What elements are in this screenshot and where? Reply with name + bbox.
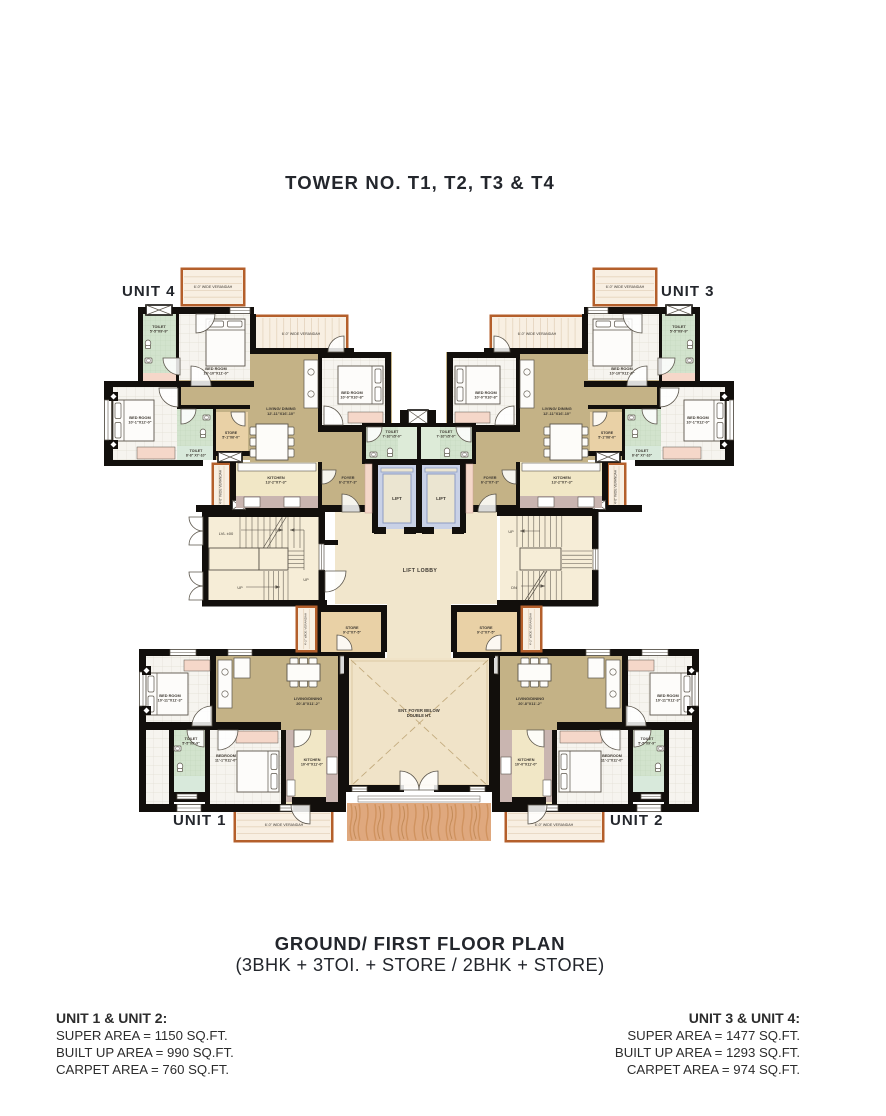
svg-text:12'-11"X16'-10": 12'-11"X16'-10"	[267, 411, 295, 416]
svg-text:BEDROOM: BEDROOM	[602, 754, 622, 758]
svg-text:TOILET: TOILET	[672, 325, 686, 329]
svg-text:UP: UP	[508, 530, 514, 534]
svg-text:KITCHEN: KITCHEN	[267, 475, 284, 480]
svg-text:BED ROOM: BED ROOM	[341, 390, 362, 395]
svg-text:6'-2"X7'-3": 6'-2"X7'-3"	[481, 481, 500, 485]
svg-text:10'-0"X11'-0": 10'-0"X11'-0"	[301, 763, 324, 767]
svg-text:4'-2" WIDE VERANDAH: 4'-2" WIDE VERANDAH	[529, 613, 533, 645]
svg-text:LVL ±00: LVL ±00	[219, 531, 234, 536]
svg-text:UP: UP	[237, 586, 243, 590]
svg-text:BED ROOM: BED ROOM	[205, 366, 226, 371]
svg-text:11'-1"X11'-0": 11'-1"X11'-0"	[215, 759, 237, 763]
svg-text:BEDROOM: BEDROOM	[216, 754, 236, 758]
svg-text:4'-0" WIDE VERANDAH: 4'-0" WIDE VERANDAH	[219, 469, 223, 504]
svg-text:GROUND/ FIRST FLOOR PLAN: GROUND/ FIRST FLOOR PLAN	[275, 933, 566, 954]
svg-text:SUPER AREA = 1477 SQ.FT.: SUPER AREA = 1477 SQ.FT.	[627, 1028, 800, 1043]
svg-text:BED ROOM: BED ROOM	[687, 415, 708, 420]
svg-text:6'-0" WIDE VERANDAH: 6'-0" WIDE VERANDAH	[282, 332, 321, 336]
svg-text:UNIT 1: UNIT 1	[173, 812, 227, 829]
svg-text:KITCHEN: KITCHEN	[553, 475, 570, 480]
svg-text:UNIT 2: UNIT 2	[610, 812, 664, 829]
svg-text:FOYER: FOYER	[341, 476, 354, 480]
svg-text:DN: DN	[511, 586, 517, 590]
svg-text:CARPET AREA = 974 SQ.FT.: CARPET AREA = 974 SQ.FT.	[627, 1062, 800, 1077]
svg-text:UP: UP	[303, 578, 309, 582]
svg-text:10'-10"X11'-0": 10'-10"X11'-0"	[203, 372, 228, 376]
svg-text:5'-5"X9'-9": 5'-5"X9'-9"	[182, 741, 200, 745]
svg-text:10'-0"X11'-0": 10'-0"X11'-0"	[515, 763, 538, 767]
svg-text:10'-10"X11'-0": 10'-10"X11'-0"	[609, 372, 634, 376]
svg-text:BED ROOM: BED ROOM	[159, 693, 180, 698]
svg-text:4'-2" WIDE VERANDAH: 4'-2" WIDE VERANDAH	[304, 613, 308, 645]
svg-text:5'-5"X9'-9": 5'-5"X9'-9"	[670, 330, 689, 334]
svg-text:5'-1"X6'-0": 5'-1"X6'-0"	[222, 435, 240, 439]
svg-text:BED ROOM: BED ROOM	[129, 415, 150, 420]
svg-text:5'-5"X9'-9": 5'-5"X9'-9"	[638, 741, 656, 745]
svg-text:STORE: STORE	[479, 626, 492, 630]
svg-text:11'-1"X11'-0": 11'-1"X11'-0"	[601, 759, 623, 763]
svg-text:KITCHEN: KITCHEN	[518, 758, 535, 762]
svg-text:8'-8" X7'-10": 8'-8" X7'-10"	[632, 453, 653, 457]
svg-text:13'-2"X7'-3": 13'-2"X7'-3"	[265, 481, 286, 485]
svg-text:20'-8"X11'-2": 20'-8"X11'-2"	[518, 701, 542, 706]
svg-text:LIFT: LIFT	[392, 496, 402, 501]
svg-text:TOILET: TOILET	[152, 325, 166, 329]
svg-text:LIFT LOBBY: LIFT LOBBY	[403, 568, 438, 574]
svg-text:6'-2"X7'-3": 6'-2"X7'-3"	[339, 481, 358, 485]
svg-text:UNIT 3: UNIT 3	[661, 283, 715, 300]
svg-text:8'-8" X7'-10": 8'-8" X7'-10"	[186, 453, 207, 457]
svg-text:10'-0"X10'-8": 10'-0"X10'-8"	[474, 396, 497, 400]
svg-text:BUILT UP AREA = 1293 SQ.FT.: BUILT UP AREA = 1293 SQ.FT.	[615, 1045, 800, 1060]
svg-text:UNIT 4: UNIT 4	[122, 283, 176, 300]
svg-text:5'-1"X6'-0": 5'-1"X6'-0"	[598, 435, 616, 439]
svg-text:5'-5"X9'-9": 5'-5"X9'-9"	[150, 330, 169, 334]
svg-text:CARPET AREA = 760 SQ.FT.: CARPET AREA = 760 SQ.FT.	[56, 1062, 229, 1077]
svg-text:KITCHEN: KITCHEN	[304, 758, 321, 762]
svg-text:FOYER: FOYER	[483, 476, 496, 480]
svg-text:13'-2"X7'-3": 13'-2"X7'-3"	[551, 481, 572, 485]
svg-text:BUILT UP AREA = 990 SQ.FT.: BUILT UP AREA = 990 SQ.FT.	[56, 1045, 234, 1060]
svg-text:BED ROOM: BED ROOM	[475, 390, 496, 395]
svg-text:6'-0" WIDE VERANDAH: 6'-0" WIDE VERANDAH	[535, 823, 574, 827]
svg-text:6'-0" WIDE VERANDAH: 6'-0" WIDE VERANDAH	[194, 285, 233, 289]
svg-text:10'-11"X11'-3": 10'-11"X11'-3"	[158, 699, 183, 703]
svg-text:9'-2"X7'-5": 9'-2"X7'-5"	[477, 631, 496, 635]
svg-text:7'-10"x5'-0": 7'-10"x5'-0"	[383, 434, 402, 438]
svg-text:10'-11"X11'-3": 10'-11"X11'-3"	[656, 699, 681, 703]
svg-text:6'-0" WIDE VERANDAH: 6'-0" WIDE VERANDAH	[265, 823, 304, 827]
svg-text:(3BHK + 3TOI. + STORE / 2BHK +: (3BHK + 3TOI. + STORE / 2BHK + STORE)	[235, 955, 604, 975]
svg-text:BED ROOM: BED ROOM	[657, 693, 678, 698]
svg-text:UNIT 3 & UNIT 4:: UNIT 3 & UNIT 4:	[689, 1010, 800, 1026]
svg-text:BED ROOM: BED ROOM	[611, 366, 632, 371]
svg-text:LIFT: LIFT	[436, 496, 446, 501]
svg-text:9'-2"X7'-5": 9'-2"X7'-5"	[343, 631, 362, 635]
svg-text:UNIT 1 & UNIT 2:: UNIT 1 & UNIT 2:	[56, 1010, 167, 1026]
svg-text:10'-0"X10'-8": 10'-0"X10'-8"	[340, 396, 363, 400]
svg-text:6'-0" WIDE VERANDAH: 6'-0" WIDE VERANDAH	[518, 332, 557, 336]
svg-text:SUPER AREA = 1150 SQ.FT.: SUPER AREA = 1150 SQ.FT.	[56, 1028, 228, 1043]
svg-text:20'-8"X11'-2": 20'-8"X11'-2"	[296, 701, 320, 706]
svg-text:TOWER NO. T1, T2, T3 & T4: TOWER NO. T1, T2, T3 & T4	[285, 172, 555, 193]
svg-text:DOUBLE HT.: DOUBLE HT.	[407, 713, 432, 718]
svg-text:10'-1"X12'-0": 10'-1"X12'-0"	[686, 421, 709, 425]
svg-text:STORE: STORE	[345, 626, 358, 630]
svg-text:12'-11"X16'-10": 12'-11"X16'-10"	[543, 411, 571, 416]
svg-text:10'-1"X12'-0": 10'-1"X12'-0"	[128, 421, 151, 425]
svg-text:7'-10"x5'-0": 7'-10"x5'-0"	[437, 434, 456, 438]
svg-text:6'-0" WIDE VERANDAH: 6'-0" WIDE VERANDAH	[606, 285, 645, 289]
svg-text:4'-0" WIDE VERANDAH: 4'-0" WIDE VERANDAH	[614, 469, 618, 504]
